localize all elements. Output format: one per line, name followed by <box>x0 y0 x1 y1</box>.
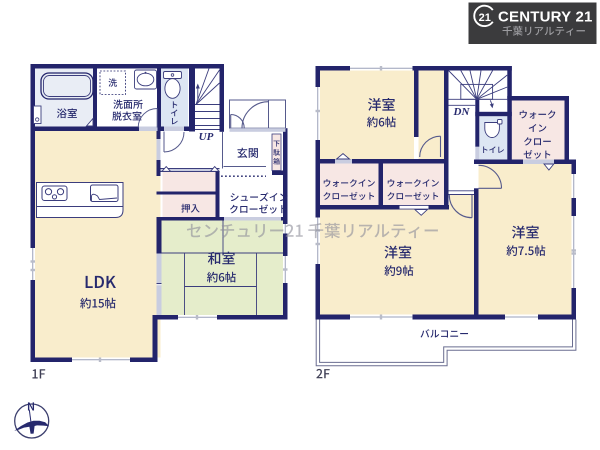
svg-text:UP: UP <box>199 131 214 143</box>
svg-text:CENTURY 21: CENTURY 21 <box>498 9 593 26</box>
svg-text:21: 21 <box>479 12 491 24</box>
svg-text:DN: DN <box>453 106 471 118</box>
